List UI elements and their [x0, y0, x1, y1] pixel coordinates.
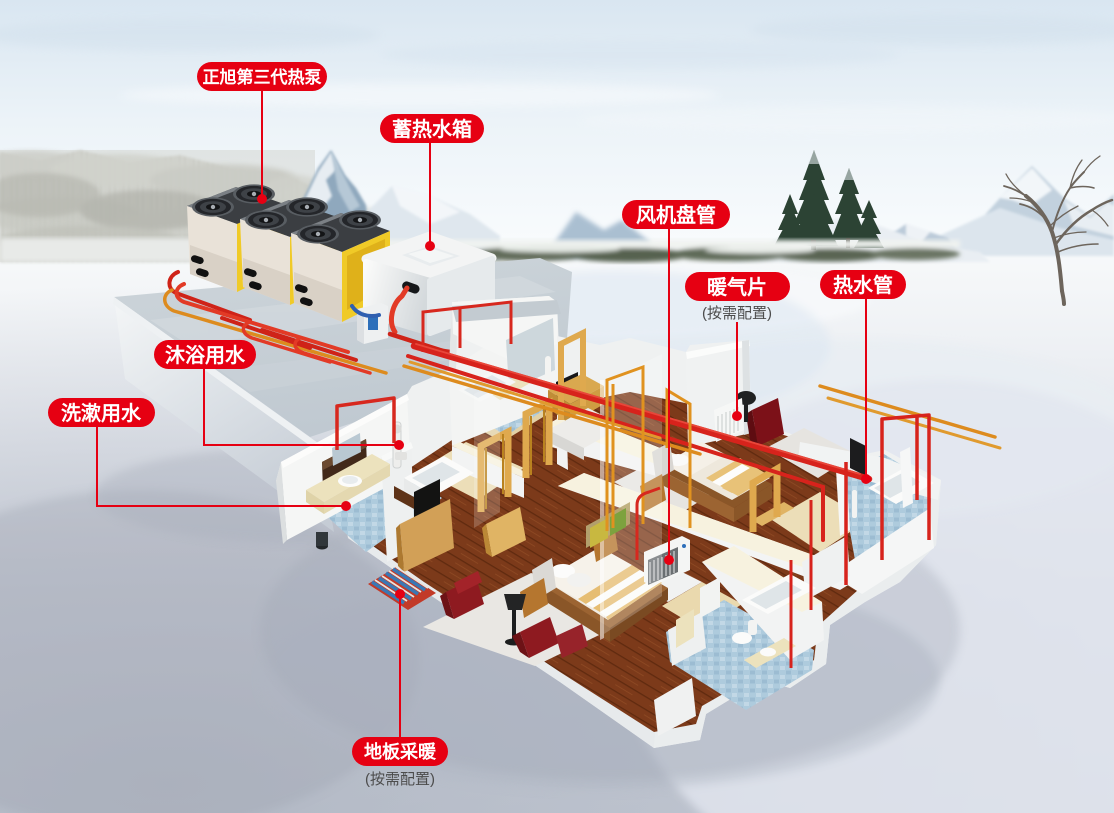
svg-text:风机盘管: 风机盘管 [636, 203, 716, 227]
svg-text:正旭第三代热泵: 正旭第三代热泵 [203, 67, 322, 87]
svg-text:蓄热水箱: 蓄热水箱 [392, 117, 472, 141]
svg-text:洗漱用水: 洗漱用水 [61, 402, 142, 425]
svg-text:沐浴用水: 沐浴用水 [165, 344, 246, 367]
svg-text:热水管: 热水管 [833, 273, 893, 297]
svg-text:地板采暖: 地板采暖 [364, 741, 437, 762]
svg-text:(按需配置): (按需配置) [365, 771, 435, 788]
svg-text:暖气片: 暖气片 [707, 275, 767, 299]
svg-text:(按需配置): (按需配置) [702, 305, 772, 322]
